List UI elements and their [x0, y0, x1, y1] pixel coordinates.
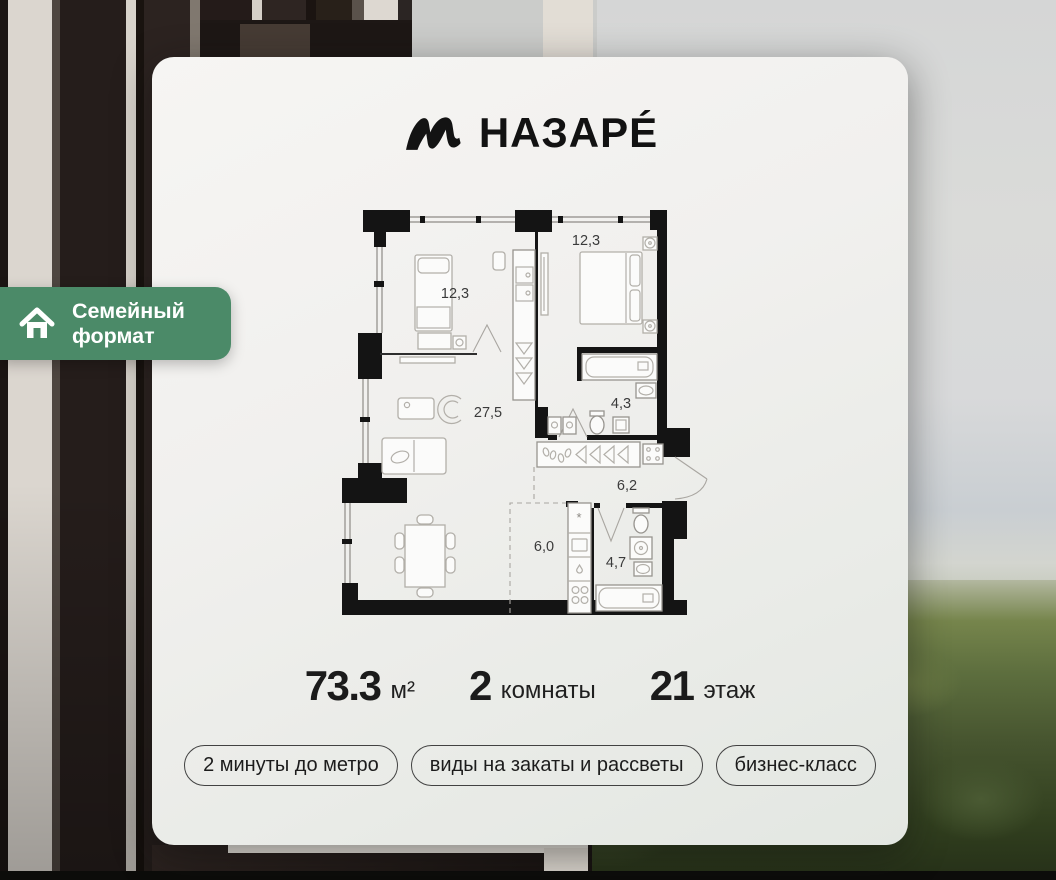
stove-icon: [643, 444, 663, 464]
wall-bath2-top: [626, 503, 662, 508]
bathtub-2: [596, 585, 662, 611]
door-bedroom-1: [473, 325, 501, 352]
stat-rooms: 2 комнаты: [469, 665, 596, 707]
stat-area-unit: м²: [390, 679, 415, 707]
feature-tags: 2 минуты до метро виды на закаты и рассв…: [152, 745, 908, 786]
tag-views: виды на закаты и рассветы: [411, 745, 703, 786]
bed-2: [580, 252, 642, 324]
room-label-bathroom-2: 4,7: [606, 555, 626, 571]
room-label-living: 27,5: [474, 405, 502, 421]
room-label-kitchen: 6,0: [534, 539, 554, 555]
toilet-1-tank: [590, 411, 604, 416]
family-format-badge: Семейный формат: [0, 287, 231, 360]
stat-rooms-unit: комнаты: [501, 679, 596, 707]
brand-logo: НАЗАРÉ: [152, 109, 908, 157]
bathtub-1: [582, 354, 657, 380]
toilet-1: [590, 416, 604, 434]
tag-business-class: бизнес-класс: [716, 745, 876, 786]
chair: [446, 557, 455, 573]
hall-wardrobe: [537, 442, 640, 467]
family-badge-text: Семейный формат: [72, 299, 185, 347]
family-badge-line1: Семейный: [72, 299, 185, 323]
building-top-wall: [412, 0, 597, 57]
floor-plan-drawing: *: [330, 195, 710, 625]
room-label-bedroom-2: 12,3: [572, 233, 600, 249]
chair: [417, 515, 433, 524]
stat-area: 73.3 м²: [305, 665, 415, 707]
floor-plan: *: [330, 195, 710, 625]
chair: [395, 533, 404, 549]
toilet-2: [634, 515, 648, 533]
nightstand-1: [453, 336, 466, 349]
kitchen-zone-boundary: [510, 503, 566, 613]
tag-metro: 2 минуты до метро: [184, 745, 398, 786]
wall-corner-topleft: [363, 210, 410, 247]
chair: [446, 533, 455, 549]
facade-window: [240, 24, 310, 57]
chair: [395, 557, 404, 573]
tv-console: [400, 357, 455, 363]
cabinet: [398, 398, 434, 419]
brand-m-icon: [402, 111, 464, 155]
armchair: [438, 396, 461, 424]
room-label-hallway: 6,2: [617, 478, 637, 494]
wall-top-mid-pier: [515, 210, 552, 232]
dining-table: [405, 525, 445, 587]
facade-window-band: [200, 20, 412, 57]
stats-row: 73.3 м² 2 комнаты 21 этаж: [152, 665, 908, 707]
building-pillar: [543, 0, 593, 57]
sink-star-icon: *: [576, 510, 581, 525]
brand-name: НАЗАРÉ: [479, 109, 658, 157]
room-label-bathroom-1: 4,3: [611, 396, 631, 412]
wall-bedroom2-bottom: [577, 347, 657, 353]
house-icon: [17, 305, 57, 343]
stat-area-value: 73.3: [305, 665, 381, 707]
listing-card: НАЗАРÉ: [152, 57, 908, 845]
family-badge-line2: формат: [72, 324, 185, 348]
balcony-rail: [228, 845, 588, 853]
wall-right: [657, 210, 667, 428]
wall-left-bay: [358, 333, 382, 379]
vanity-a: [548, 417, 561, 434]
stat-floor-value: 21: [650, 665, 694, 707]
bottom-dark-strip: [0, 871, 1056, 880]
door-bathroom-2: [598, 508, 624, 541]
wall-bath1-bottom: [587, 435, 657, 440]
shelf-1: [493, 252, 505, 270]
stat-floor-unit: этаж: [703, 679, 755, 707]
stat-floor: 21 этаж: [650, 665, 756, 707]
toilet-2-tank: [633, 508, 649, 513]
wall-corner-bottomleft: [342, 583, 358, 603]
room-label-bedroom-1: 12,3: [441, 286, 469, 302]
vanity-b: [563, 417, 576, 434]
door-entrance: [675, 457, 707, 499]
stat-rooms-value: 2: [469, 665, 491, 707]
dresser-1: [418, 333, 451, 349]
washing-machine: [630, 537, 652, 559]
chair: [417, 588, 433, 597]
